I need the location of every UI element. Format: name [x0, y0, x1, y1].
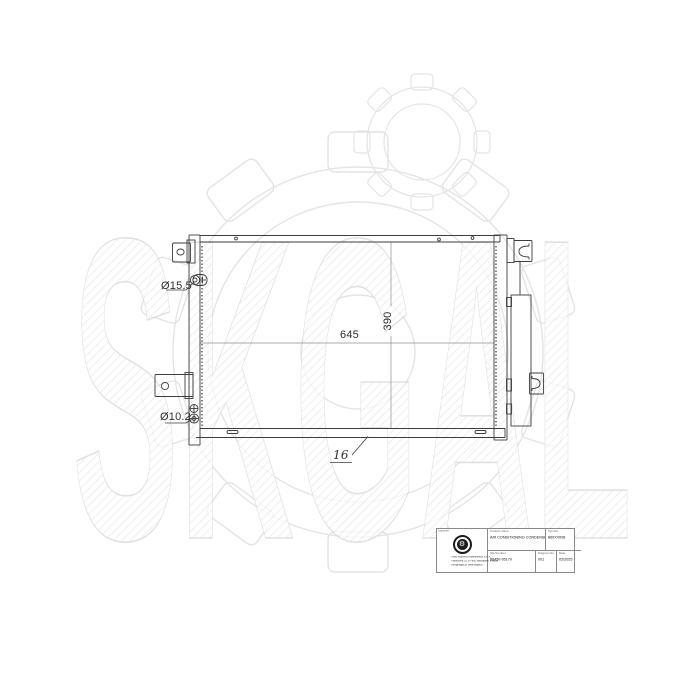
symbol-cell: Symbol 860XV008 [545, 529, 581, 550]
product-name-header: Product name [490, 530, 518, 532]
date-header: Date [559, 552, 570, 554]
company-line: Fabryczna 25, 87-800 Włocławek, Poland [452, 560, 473, 562]
company-address: KMB Wojciech Adamkiewicz S.K.A. Fabryczn… [437, 556, 487, 568]
company-line: KMB Wojciech Adamkiewicz S.K.A. [452, 556, 473, 558]
dimension-core-thickness: 16 [333, 448, 349, 462]
gear-glyph-icon: ⚙ [457, 539, 468, 550]
title-block: Importer ⚙ KMB Wojciech Adamkiewicz S.K.… [436, 528, 575, 573]
condenser-line-art: SKGAL [0, 0, 700, 700]
diagram-no-header: Diagram No. [538, 552, 547, 554]
dimension-core-width: 645 [340, 329, 359, 341]
title-block-producer-cell: Importer ⚙ KMB Wojciech Adamkiewicz S.K.… [437, 529, 488, 572]
oe-number-cell: OE Number 88450-05170 [488, 551, 535, 572]
symbol-value: 860XV008 [548, 536, 568, 540]
symbol-header: Symbol [548, 530, 564, 532]
title-block-fields: Product name AIR CONDITIONING CONDENSER … [488, 529, 581, 572]
oe-number-value: 88450-05170 [490, 558, 518, 562]
product-name-value: AIR CONDITIONING CONDENSER [490, 536, 524, 540]
drawing-page: SKGAL [0, 0, 700, 700]
product-name-cell: Product name AIR CONDITIONING CONDENSER [488, 529, 545, 550]
dimension-core-height: 390 [382, 312, 394, 331]
date-value: 02/2025 [559, 558, 572, 562]
dimension-port-bottom: Ø10.2 [160, 411, 191, 423]
diagram-no-cell: Diagram No. 001 [535, 551, 556, 572]
date-cell: Date 02/2025 [556, 551, 581, 572]
diagram-no-value: 001 [538, 558, 549, 562]
dimension-port-top: Ø15.5 [161, 280, 192, 292]
company-line: info@skgal.pl, www.skgal.pl [452, 564, 473, 566]
gear-badge-logo-icon: ⚙ [453, 535, 472, 554]
oe-number-header: OE Number [490, 552, 513, 554]
producer-header: Importer [437, 529, 449, 532]
